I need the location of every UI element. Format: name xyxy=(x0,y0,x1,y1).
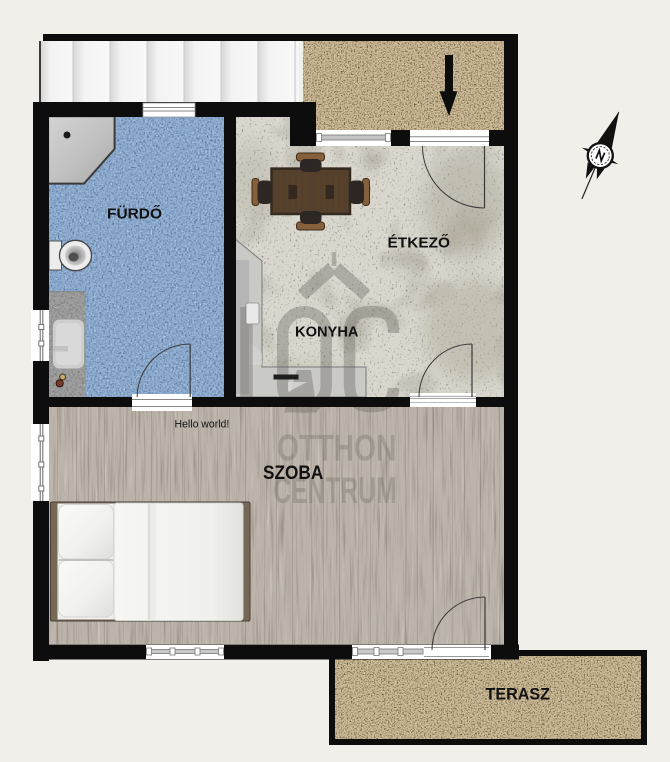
svg-text:KONYHA: KONYHA xyxy=(295,325,359,341)
svg-text:Hello world!: Hello world! xyxy=(175,419,230,431)
svg-text:FÜRDŐ: FÜRDŐ xyxy=(107,204,162,222)
svg-text:TERASZ: TERASZ xyxy=(486,686,551,704)
svg-text:ÉTKEZŐ: ÉTKEZŐ xyxy=(388,234,451,252)
svg-text:SZOBA: SZOBA xyxy=(263,463,324,484)
